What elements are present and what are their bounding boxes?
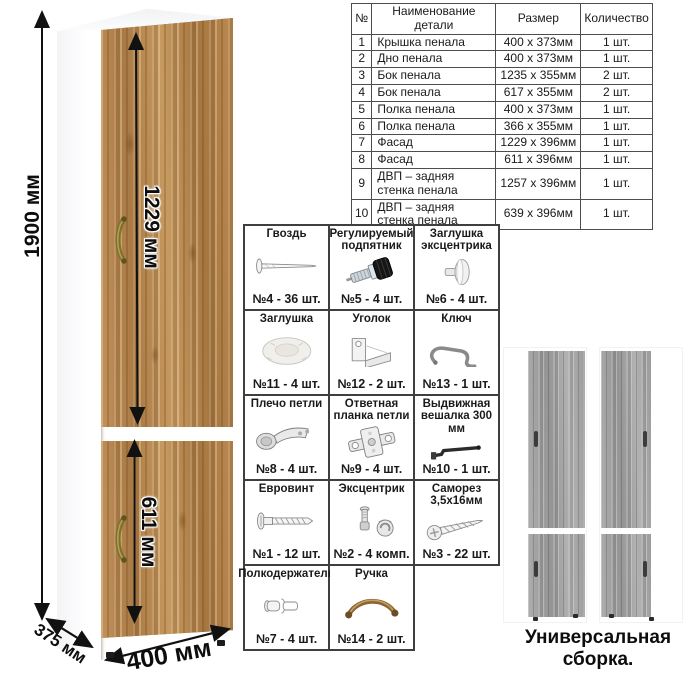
hardware-grid: Гвоздь №4 - 36 шт. Регулируемый подпятни… [243,224,500,651]
dimension-upper-door-label: 1229 мм [139,154,163,300]
cam-lock-icon [338,505,406,537]
screw-icon [423,511,491,543]
part-name: Крышка пенала [372,34,496,51]
parts-table: № Наименование детали Размер Количество … [351,3,653,230]
part-num: 8 [352,152,372,169]
part-name: Полка пенала [372,101,496,118]
part-name: Бок пенала [372,84,496,101]
part-size: 400 x 373мм [496,34,581,51]
cabinet-foot [649,617,654,621]
handle-icon [338,590,406,622]
hardware-item-shelf-pin: Полкодержатель №7 - 4 шт. [245,566,330,651]
euroscrew-icon [253,505,321,537]
cabinet-foot [533,617,538,621]
part-qty: 1 шт. [581,118,652,135]
dimension-height-label: 1900 мм [21,143,45,289]
hinge-arm-icon [253,420,321,452]
table-row: 4Бок пенала617 x 355мм2 шт. [352,84,653,101]
hardware-item-corner-bracket: Уголок №12 - 2 шт. [330,311,415,396]
spec-sheet: 1900 мм 1229 мм 611 мм 400 мм 375 мм № Н… [0,0,700,683]
part-name: Фасад [372,152,496,169]
part-num: 7 [352,135,372,152]
part-name: Полка пенала [372,118,496,135]
part-qty: 1 шт. [581,168,652,199]
col-qty: Количество [581,4,652,35]
shelf-pin-icon [253,590,321,622]
part-qty: 1 шт. [581,101,652,118]
assembled-cabinet-left [503,347,587,623]
part-num: 1 [352,34,372,51]
hardware-item-nail: Гвоздь №4 - 36 шт. [245,226,330,311]
assembled-cabinet-right [599,347,683,623]
part-size: 617 x 355мм [496,84,581,101]
nail-icon [253,250,321,282]
col-num: № [352,4,372,35]
part-qty: 2 шт. [581,84,652,101]
part-qty: 1 шт. [581,135,652,152]
table-row: 5Полка пенала400 x 373мм1 шт. [352,101,653,118]
dimension-lower-door-label: 611 мм [136,459,160,605]
table-row: 3Бок пенала1235 x 355мм2 шт. [352,68,653,85]
part-num: 5 [352,101,372,118]
pullout-hanger-icon [428,435,485,462]
part-size: 400 x 373мм [496,101,581,118]
adjustable-foot-icon [338,256,406,288]
part-num: 6 [352,118,372,135]
part-name: Бок пенала [372,68,496,85]
hardware-item-cap: Заглушка №11 - 4 шт. [245,311,330,396]
part-qty: 1 шт. [581,152,652,169]
cabinet-illustration: 1900 мм 1229 мм 611 мм 400 мм 375 мм [0,0,250,683]
part-size: 1257 x 396мм [496,168,581,199]
table-row: 6Полка пенала366 x 355мм1 шт. [352,118,653,135]
cabinet-foot [609,614,614,618]
assembly-caption: Универсальная сборка. [492,627,700,671]
hardware-item-screw: Саморез 3,5х16мм №3 - 22 шт. [415,481,500,566]
hardware-item-key: Ключ №13 - 1 шт. [415,311,500,396]
part-size: 1235 x 355мм [496,68,581,85]
part-qty: 1 шт. [581,199,652,230]
cam-cover-icon [423,256,491,288]
dimension-arrows [0,0,250,683]
hinge-plate-icon [338,426,406,458]
table-row: 8Фасад611 x 396мм1 шт. [352,152,653,169]
door-handle-icon [534,561,538,577]
part-size: 400 x 373мм [496,51,581,68]
part-size: 1229 x 396мм [496,135,581,152]
part-size: 639 x 396мм [496,199,581,230]
part-name: Дно пенала [372,51,496,68]
col-size: Размер [496,4,581,35]
hardware-item-hinge-arm: Плечо петли №8 - 4 шт. [245,396,330,481]
part-num: 9 [352,168,372,199]
part-num: 4 [352,84,372,101]
part-num: 3 [352,68,372,85]
hardware-item-adjustable-foot: Регулируемый подпятник №5 - 4 шт. [330,226,415,311]
door-handle-icon [534,431,538,447]
table-row: 1Крышка пенала400 x 373мм1 шт. [352,34,653,51]
hardware-item-pullout-hanger: Выдвижная вешалка 300 мм №10 - 1 шт. [415,396,500,481]
table-header-row: № Наименование детали Размер Количество [352,4,653,35]
door-handle-icon [643,431,647,447]
part-qty: 2 шт. [581,68,652,85]
part-name: ДВП – задняя стенка пенала [372,168,496,199]
hardware-item-cam-lock: Эксцентрик №2 - 4 комп. [330,481,415,566]
table-row: 2Дно пенала400 x 373мм1 шт. [352,51,653,68]
hardware-item-hinge-plate: Ответная планка петли №9 - 4 шт. [330,396,415,481]
key-icon [423,335,491,367]
table-row: 9ДВП – задняя стенка пенала1257 x 396мм1… [352,168,653,199]
hardware-grid-empty-cell [415,566,500,651]
table-row: 7Фасад1229 x 396мм1 шт. [352,135,653,152]
hardware-item-cam-cover: Заглушка эксцентрика №6 - 4 шт. [415,226,500,311]
part-qty: 1 шт. [581,51,652,68]
part-size: 611 x 396мм [496,152,581,169]
cabinet-foot [573,614,578,618]
part-name: Фасад [372,135,496,152]
hardware-item-handle: Ручка №14 - 2 шт. [330,566,415,651]
col-name: Наименование детали [372,4,496,35]
part-qty: 1 шт. [581,34,652,51]
part-size: 366 x 355мм [496,118,581,135]
corner-bracket-icon [338,335,406,367]
cap-icon [253,335,321,367]
hardware-item-euroscrew: Евровинт №1 - 12 шт. [245,481,330,566]
part-num: 2 [352,51,372,68]
door-handle-icon [643,561,647,577]
